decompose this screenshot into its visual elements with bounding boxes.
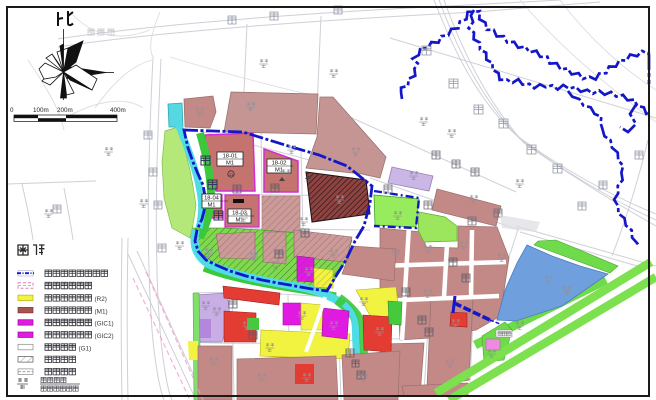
svg-text:18-03: 18-03 bbox=[232, 211, 247, 217]
svg-text:M1: M1 bbox=[226, 161, 234, 167]
svg-text:11: 11 bbox=[229, 172, 234, 177]
svg-text:18-02: 18-02 bbox=[272, 161, 287, 167]
svg-text:M1: M1 bbox=[275, 168, 283, 174]
svg-text:200m: 200m bbox=[57, 107, 73, 114]
svg-text:M1: M1 bbox=[235, 218, 243, 224]
svg-text:400m: 400m bbox=[110, 107, 126, 114]
svg-text:18-01: 18-01 bbox=[223, 154, 238, 160]
svg-text:(GIC1): (GIC1) bbox=[95, 321, 114, 328]
svg-text:(R2): (R2) bbox=[95, 296, 107, 303]
svg-text:M1: M1 bbox=[207, 203, 215, 209]
svg-text:(GIC2): (GIC2) bbox=[95, 333, 114, 340]
svg-text:18-04: 18-04 bbox=[204, 196, 220, 202]
svg-text:0: 0 bbox=[10, 107, 14, 114]
svg-text:(M1): (M1) bbox=[95, 308, 108, 315]
svg-text:(G1): (G1) bbox=[79, 345, 92, 352]
svg-text:100m: 100m bbox=[33, 107, 49, 114]
